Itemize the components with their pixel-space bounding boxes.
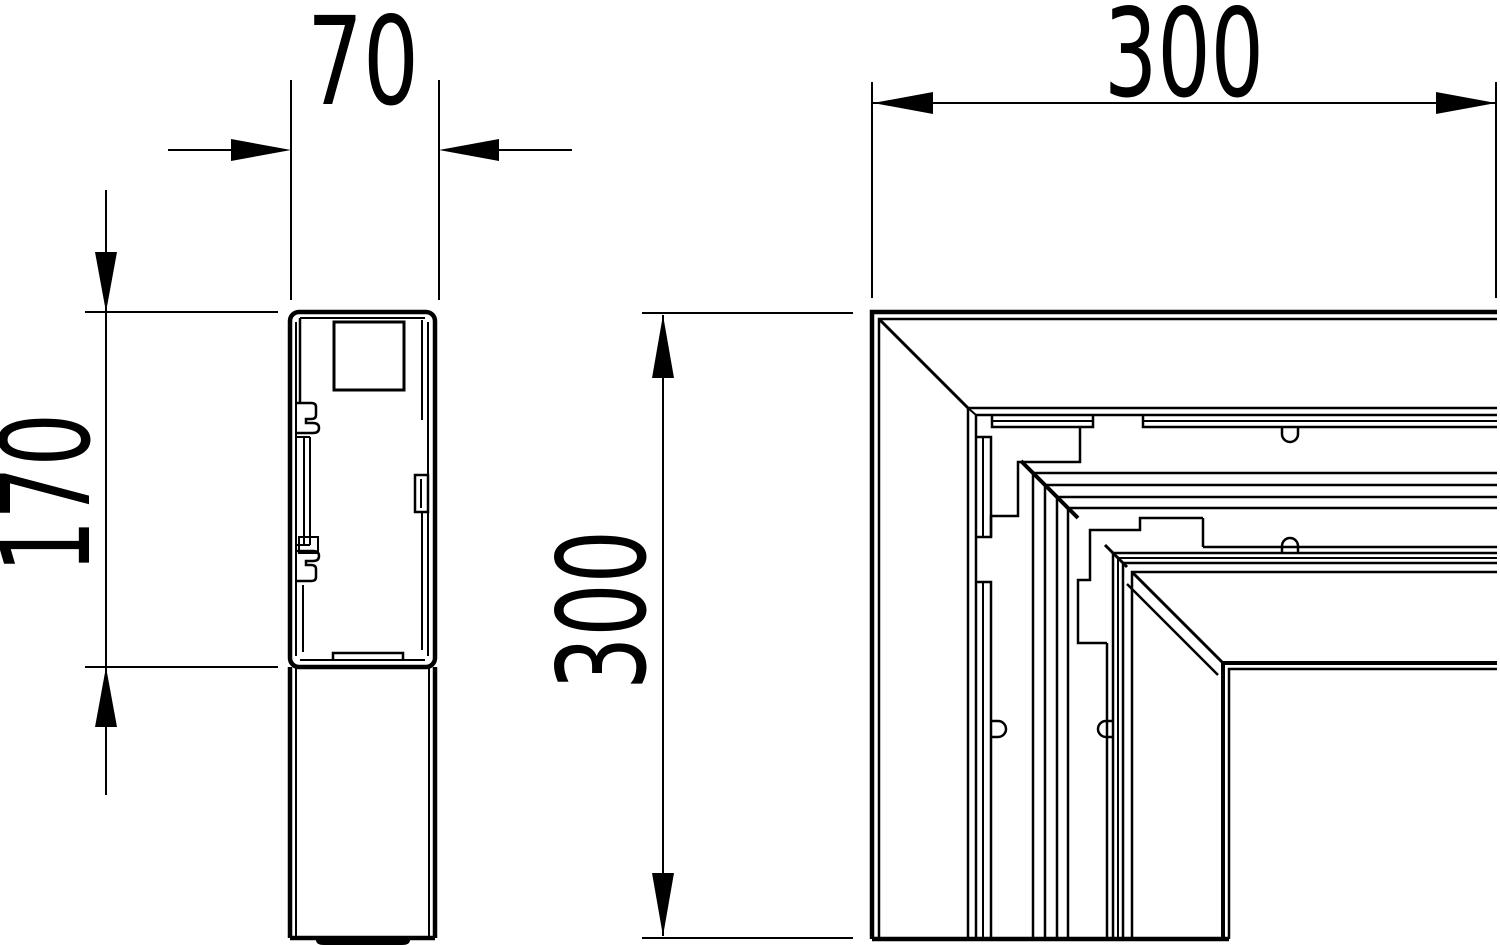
dim170-arrow-top (95, 252, 117, 312)
left-hook-upper (297, 403, 319, 433)
dimension-300-top: 300 (872, 0, 1496, 298)
section-outline (290, 312, 435, 667)
section-top-box (334, 322, 404, 390)
dim70-arrow-right (439, 139, 499, 161)
dimension-170: 170 (0, 190, 278, 795)
dim300top-arrow-right (1436, 92, 1496, 114)
end-foot (316, 938, 410, 945)
inner-rail-notch-left (1098, 721, 1113, 737)
left-rail-notch (991, 721, 1006, 737)
dim70-arrow-left (231, 139, 291, 161)
drawing-canvas: 70 170 300 300 (0, 0, 1500, 945)
section-inner-walls (296, 318, 428, 660)
dimension-70: 70 (168, 0, 572, 300)
dim70-label: 70 (307, 0, 419, 133)
lower-arm-inner (296, 667, 429, 938)
corner-view (872, 312, 1497, 939)
step-stair-1 (991, 427, 1080, 537)
lower-arm-outline (290, 667, 435, 938)
top-rail-notch (1282, 427, 1298, 442)
inner-rail-seam (1105, 545, 1127, 567)
frame-1 (1033, 473, 1497, 939)
body-inner-face (1223, 663, 1497, 939)
section-view (290, 312, 435, 945)
dim300right-arrow-bottom (652, 873, 674, 936)
technical-drawing: 70 170 300 300 (0, 0, 1500, 945)
body-miter-seam (1132, 572, 1223, 663)
inner-rail-notch-top (1282, 538, 1298, 553)
outer-miter-seam (879, 319, 968, 408)
dim170-label: 170 (0, 413, 118, 573)
dim170-arrow-bottom (95, 667, 117, 727)
body-miter-seam2 (1127, 584, 1218, 675)
left-hook-lower (297, 551, 319, 581)
dim300top-label: 300 (1104, 0, 1264, 125)
mid-miter-seam (1021, 461, 1078, 518)
dim300top-arrow-left (873, 92, 933, 114)
dim300right-arrow-top (652, 315, 674, 378)
left-channel (297, 437, 310, 545)
dim300right-label: 300 (532, 530, 674, 690)
body-inner-face2 (1229, 669, 1497, 939)
dimension-300-right: 300 (532, 313, 853, 938)
bottom-strip (333, 653, 403, 660)
